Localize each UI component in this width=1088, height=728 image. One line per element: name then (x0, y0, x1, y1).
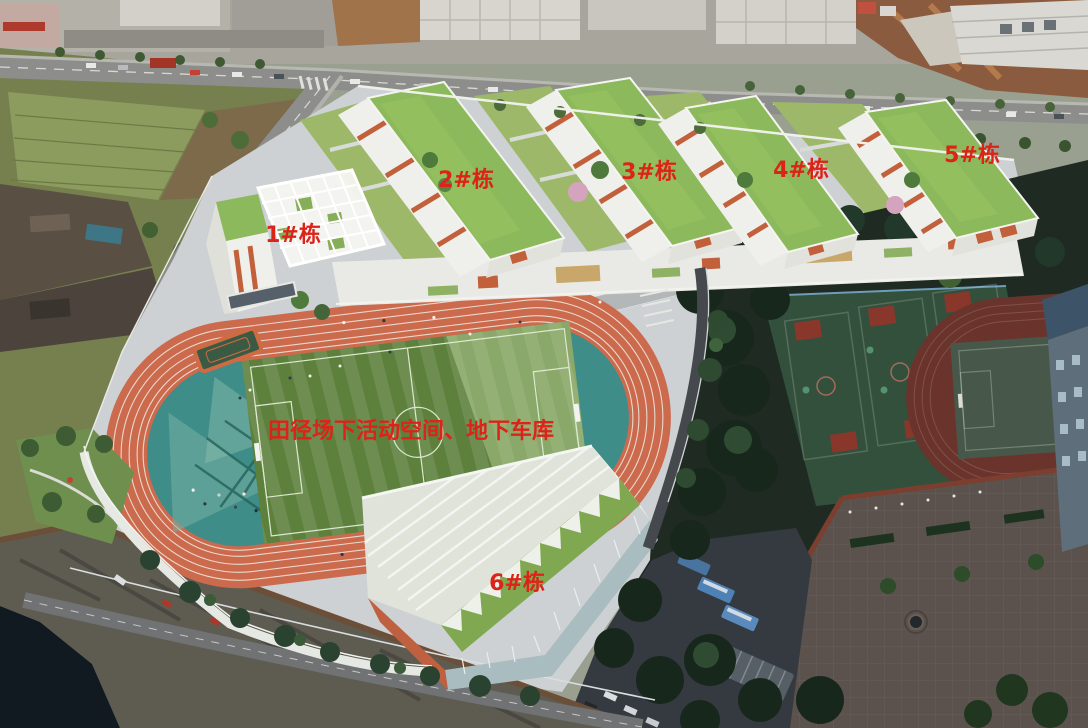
building-3-label: 3#栋 (621, 162, 677, 184)
statue (909, 615, 923, 629)
red-truck (150, 58, 176, 68)
building-6-label: 6#栋 (489, 573, 545, 595)
blossom-tree (568, 182, 588, 202)
building-5-label: 5#栋 (944, 145, 1000, 167)
building-1-label: 1#栋 (265, 225, 321, 247)
building-4-label: 4#栋 (773, 160, 829, 182)
scene-canvas (0, 0, 1088, 728)
blossom-tree (886, 196, 904, 214)
construction-site-northeast (856, 0, 1088, 98)
campus-aerial-rendering: 1#栋 2#栋 3#栋 4#栋 5#栋 6#栋 田径场下活动空间、地下车库 (0, 0, 1088, 728)
building-2-label: 2#栋 (438, 170, 494, 192)
track-area-label: 田径场下活动空间、地下车库 (268, 421, 554, 443)
